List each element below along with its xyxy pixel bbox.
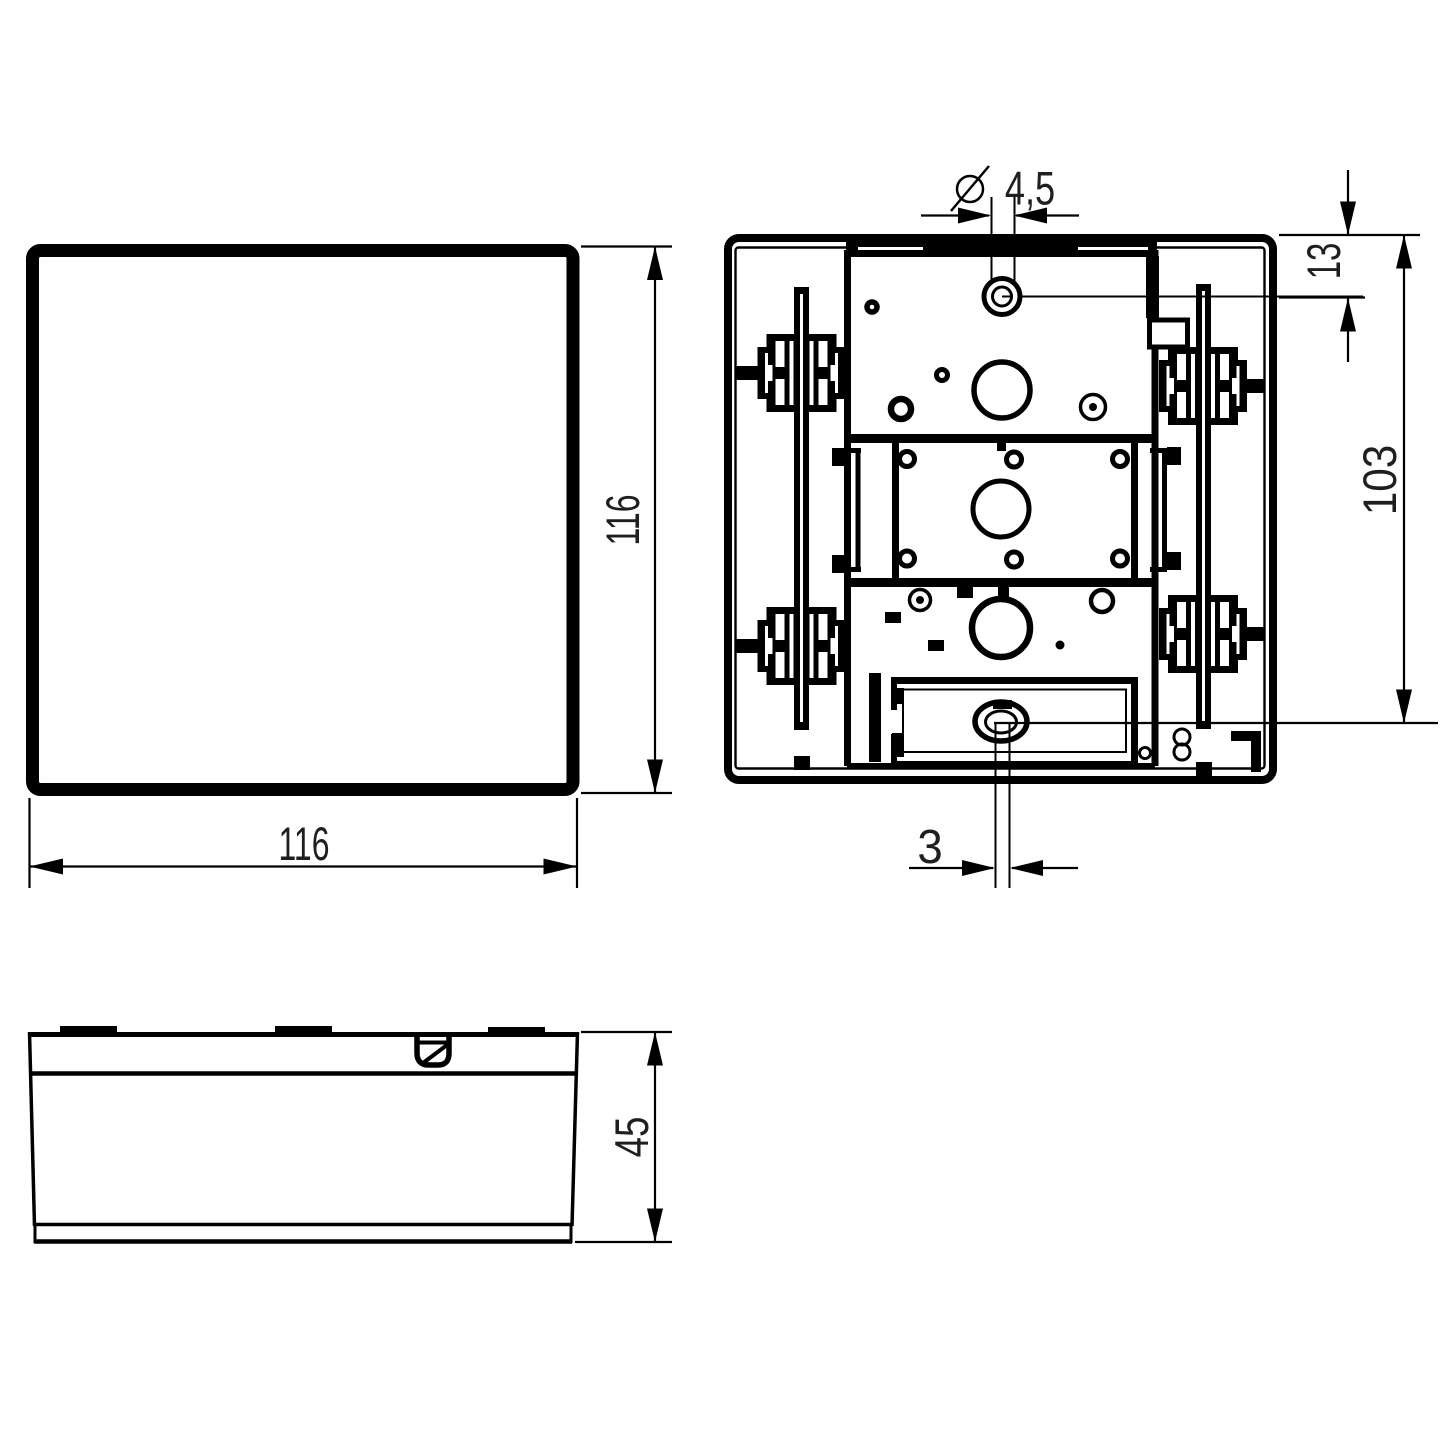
svg-text:13: 13 <box>1297 243 1350 280</box>
svg-text:4,5: 4,5 <box>1005 162 1055 215</box>
svg-text:45: 45 <box>606 1117 658 1158</box>
svg-text:103: 103 <box>1355 445 1407 516</box>
svg-text:116: 116 <box>279 818 330 871</box>
svg-text:116: 116 <box>597 495 650 546</box>
svg-text:3: 3 <box>917 820 942 873</box>
